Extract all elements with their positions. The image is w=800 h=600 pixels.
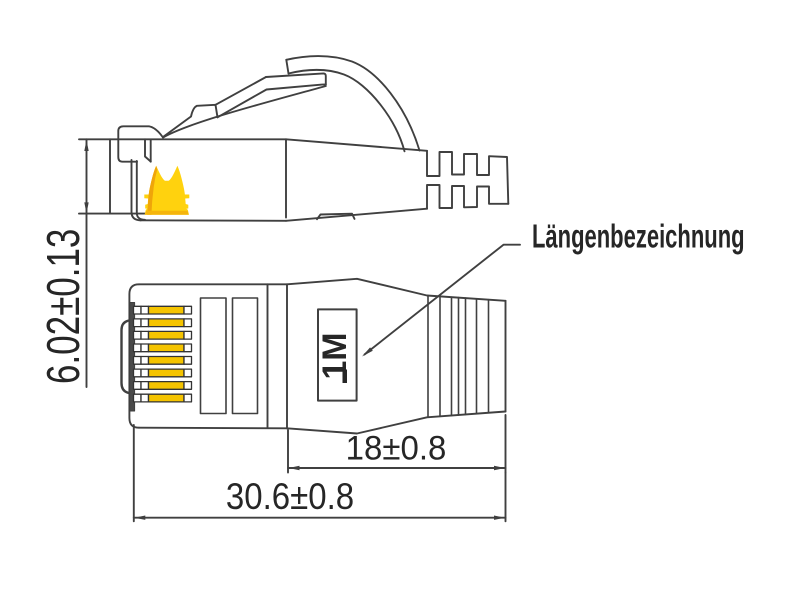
- svg-text:1M: 1M: [316, 332, 354, 379]
- svg-text:30.6±0.8: 30.6±0.8: [226, 476, 354, 517]
- svg-text:Längenbezeichnung: Längenbezeichnung: [532, 218, 745, 254]
- svg-text:18±0.8: 18±0.8: [346, 429, 447, 468]
- svg-text:6.02±0.13: 6.02±0.13: [37, 229, 89, 384]
